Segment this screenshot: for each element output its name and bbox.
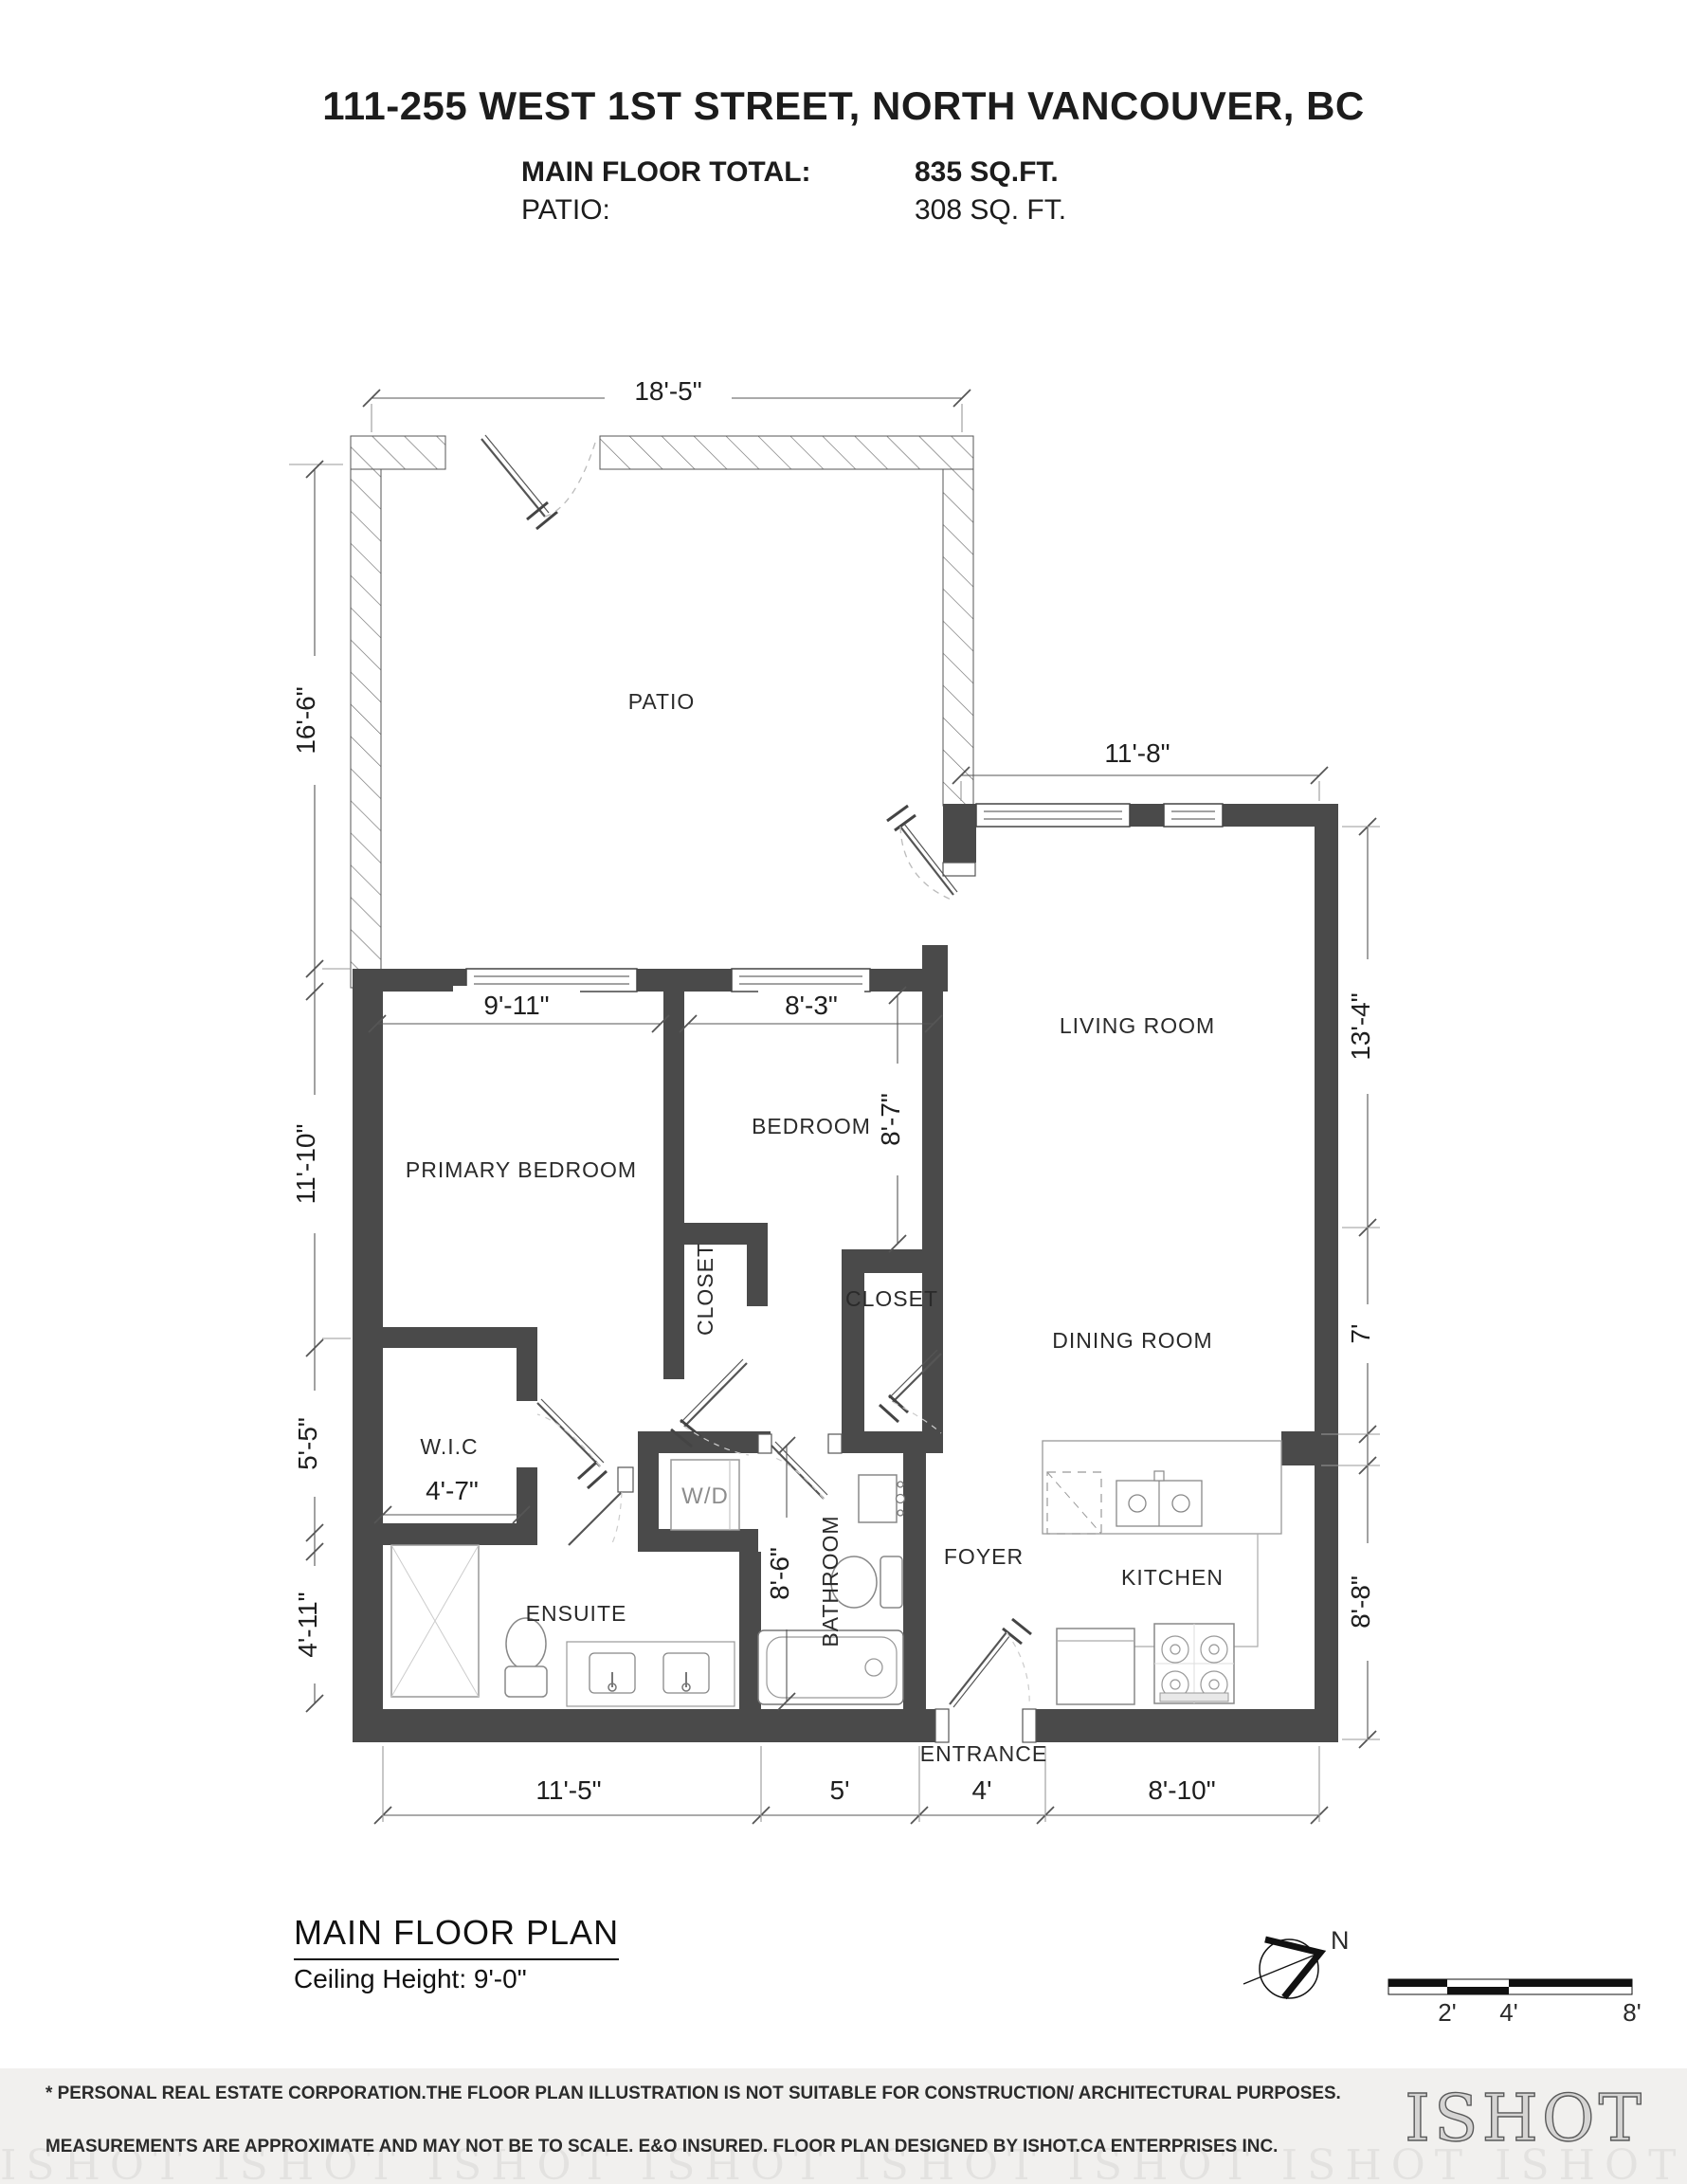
toilet bbox=[506, 1618, 546, 1669]
label-primary-bedroom: PRIMARY BEDROOM bbox=[406, 1157, 637, 1182]
dim-ensuite-height: 4'-11" bbox=[293, 1592, 322, 1657]
dim-primary-height: 11'-10" bbox=[291, 1124, 320, 1205]
label-washer-dryer: W/D bbox=[681, 1483, 729, 1509]
dim-patio-width: 18'-5" bbox=[634, 376, 701, 406]
toilet bbox=[880, 1556, 902, 1608]
dim-kitchen-height: 8'-8" bbox=[1346, 1575, 1375, 1629]
scale-8ft: 8' bbox=[1623, 1998, 1641, 2027]
dim-bottom-entry: 4' bbox=[972, 1775, 992, 1805]
north-label: N bbox=[1331, 1926, 1350, 1955]
dim-living-height: 13'-4" bbox=[1346, 992, 1375, 1060]
label-closet-1: CLOSET bbox=[693, 1243, 717, 1336]
label-closet-2: CLOSET bbox=[845, 1286, 938, 1311]
dim-wic-height: 5'-5" bbox=[293, 1417, 322, 1470]
dim-patio-height: 16'-6" bbox=[291, 686, 320, 754]
label-foyer: FOYER bbox=[944, 1544, 1024, 1569]
dim-bottom-bath: 5' bbox=[830, 1775, 850, 1805]
windows bbox=[466, 804, 1223, 992]
floor-plan-page: 111-255 WEST 1ST STREET, NORTH VANCOUVER… bbox=[0, 0, 1687, 2184]
dim-bottom-kitchen: 8'-10" bbox=[1148, 1775, 1215, 1805]
floor-plan-drawing: 18'-5" 11'-8" 9'-11" 8'-3" 16'-6" 11'-10… bbox=[0, 0, 1687, 2184]
label-wic: W.I.C bbox=[420, 1434, 478, 1459]
label-living-room: LIVING ROOM bbox=[1060, 1013, 1215, 1038]
dim-bottom-left: 11'-5" bbox=[535, 1775, 601, 1805]
plan-title-block: MAIN FLOOR PLAN Ceiling Height: 9'-0" bbox=[294, 1913, 619, 1994]
footer: * PERSONAL REAL ESTATE CORPORATION.THE F… bbox=[0, 2068, 1687, 2184]
room-labels: PATIO LIVING ROOM PRIMARY BEDROOM BEDROO… bbox=[406, 689, 1224, 1766]
dim-living-width: 11'-8" bbox=[1104, 738, 1170, 768]
watermark: ISHOT ISHOT ISHOT ISHOT ISHOT ISHOT ISHO… bbox=[0, 2141, 1687, 2184]
label-ensuite: ENSUITE bbox=[526, 1601, 627, 1626]
dim-bedroom-height: 8'-7" bbox=[876, 1093, 905, 1146]
scale-4ft: 4' bbox=[1499, 1998, 1517, 2027]
ensuite-fixtures bbox=[391, 1545, 735, 1706]
label-dining-room: DINING ROOM bbox=[1052, 1328, 1212, 1353]
disclaimer-line-1: * PERSONAL REAL ESTATE CORPORATION.THE F… bbox=[45, 2083, 1341, 2103]
north-compass: N bbox=[1243, 1926, 1350, 1998]
label-bathroom: BATHROOM bbox=[818, 1515, 843, 1647]
ceiling-height: Ceiling Height: 9'-0" bbox=[294, 1964, 619, 1994]
scale-2ft: 2' bbox=[1438, 1998, 1456, 2027]
patio-gate-door bbox=[481, 435, 595, 529]
scale-bar: 2' 4' 8' bbox=[1388, 1979, 1642, 2027]
label-patio: PATIO bbox=[628, 689, 696, 714]
dim-bathroom-height: 8'-6" bbox=[765, 1547, 794, 1600]
label-bedroom: BEDROOM bbox=[752, 1114, 871, 1138]
dim-bedroom-width: 8'-3" bbox=[785, 991, 838, 1020]
dim-primary-width: 9'-11" bbox=[483, 991, 549, 1020]
dim-wic-width: 4'-7" bbox=[426, 1476, 479, 1505]
dim-dining-height: 7' bbox=[1346, 1324, 1375, 1344]
sink bbox=[859, 1475, 897, 1522]
fridge bbox=[1057, 1629, 1134, 1704]
label-entrance: ENTRANCE bbox=[920, 1741, 1048, 1766]
plan-title: MAIN FLOOR PLAN bbox=[294, 1913, 619, 1960]
label-kitchen: KITCHEN bbox=[1121, 1565, 1224, 1590]
